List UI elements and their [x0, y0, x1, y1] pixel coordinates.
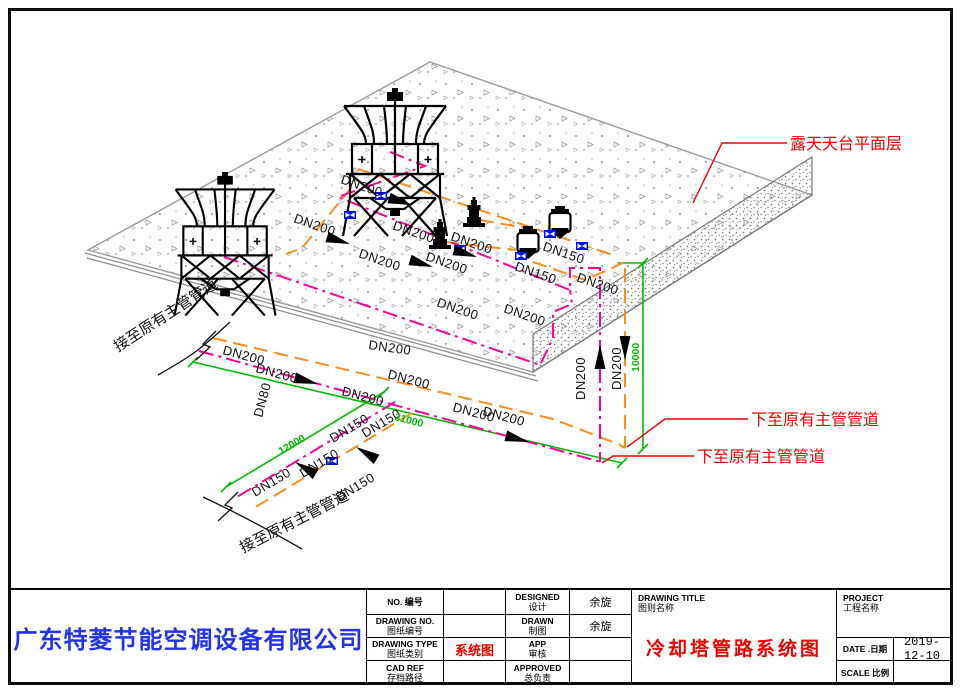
project-cell: PROJECT 工程名称: [836, 590, 950, 637]
drawing-title-cell: DRAWING TITLE 图则名称 冷却塔管路系统图: [631, 590, 836, 684]
drawn-value-cell: 余旋: [569, 614, 631, 637]
drawing-sheet: DN200 DN200 DN200 DN200 DN200 DN200 DN20…: [0, 0, 961, 693]
cad-ref-value-cell: [443, 660, 505, 684]
roof-level-label: 露天天台平面层: [790, 135, 902, 153]
no-label-cell: NO. 编号: [366, 590, 443, 614]
date-label-cell: DATE .日期: [836, 637, 893, 660]
drawing-type-label-cell: DRAWING TYPE 图纸类别: [366, 637, 443, 660]
svg-text:DN200: DN200: [386, 366, 431, 392]
down-to-main-label-2: 下至原有主管管道: [697, 448, 825, 466]
svg-text:10000: 10000: [630, 343, 642, 372]
drawing-type-value-cell: 系统图: [443, 637, 505, 660]
drawing-no-value-cell: [443, 614, 505, 637]
svg-text:DN200: DN200: [573, 357, 588, 400]
drawing-no-label-cell: DRAWING NO. 图纸编号: [366, 614, 443, 637]
svg-text:31000: 31000: [393, 411, 424, 430]
drawn-label-cell: DRAWN 制图: [505, 614, 569, 637]
date-value-cell: 2019-12-10: [893, 637, 950, 660]
app-value-cell: [569, 637, 631, 660]
designed-label-cell: DESIGNED 设计: [505, 590, 569, 614]
company-name: 广东特菱节能空调设备有限公司: [11, 590, 366, 684]
no-value-cell: [443, 590, 505, 614]
approved-label-cell: APPROVED 总负责: [505, 660, 569, 684]
designed-value-cell: 余旋: [569, 590, 631, 614]
svg-text:DN200: DN200: [609, 347, 624, 390]
down-to-main-label-1: 下至原有主管管道: [751, 411, 879, 429]
approved-value-cell: [569, 660, 631, 684]
drawing-title-text: 冷却塔管路系统图: [632, 634, 836, 661]
app-label-cell: APP 审核: [505, 637, 569, 660]
scale-value-cell: [893, 660, 950, 684]
piping-isometric-drawing: DN200 DN200 DN200 DN200 DN200 DN200 DN20…: [0, 0, 961, 585]
scale-label-cell: SCALE 比例: [836, 660, 893, 684]
svg-text:12000: 12000: [276, 432, 307, 457]
title-block: 广东特菱节能空调设备有限公司 NO. 编号 DESIGNED 设计 余旋 DRA…: [11, 588, 950, 684]
cad-ref-label-cell: CAD REF 存档路径: [366, 660, 443, 684]
svg-text:DN80: DN80: [250, 381, 274, 419]
